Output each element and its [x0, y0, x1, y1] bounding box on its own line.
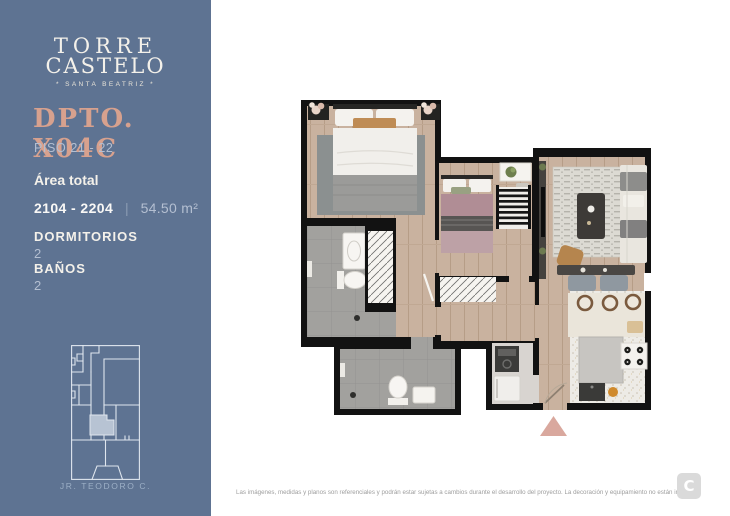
hall-closet — [440, 277, 496, 302]
tv-icon — [541, 187, 545, 237]
bathrooms-value: 2 — [34, 278, 41, 293]
cutting-board — [627, 321, 643, 333]
double-bed — [333, 104, 417, 211]
plant-icon — [506, 167, 517, 178]
street-label: JR. TEODORO C. — [0, 481, 211, 491]
floor-plan — [283, 95, 668, 442]
dining-chair — [568, 275, 596, 291]
map-unit-highlight — [90, 415, 114, 435]
facade-notch — [644, 273, 653, 291]
dining-chair — [600, 275, 628, 291]
bathrooms-label: BAÑOS — [34, 261, 86, 276]
divider-bar: | — [125, 200, 129, 216]
brand-name-line2: CASTELO — [0, 56, 211, 77]
plant-icon — [539, 248, 546, 255]
bedrooms-label: DORMITORIOS — [34, 229, 138, 244]
sink — [413, 387, 435, 403]
unit-numbers: 2104 - 2204 — [34, 200, 113, 216]
bedrooms-value: 2 — [34, 246, 41, 261]
kitchen-counter — [579, 337, 623, 383]
brand-logo: TORRE CASTELO * SANTA BEATRIZ * — [0, 36, 211, 88]
total-area-value: 54.50 m² — [141, 200, 199, 216]
floor-range-label: PISO 21 - 22 — [34, 141, 113, 155]
unit-title: DPTO. X04C — [33, 104, 211, 164]
toilet-icon — [337, 271, 366, 289]
bar-stools — [578, 295, 640, 310]
area-total-label: Área total — [34, 172, 99, 188]
coffee-table — [577, 193, 605, 239]
wardrobe-closet — [365, 223, 396, 312]
toilet-icon — [388, 376, 408, 405]
sink-cabinet — [343, 233, 365, 269]
dining-table — [557, 265, 635, 275]
towel — [340, 363, 345, 377]
flyer-page: TORRE CASTELO * SANTA BEATRIZ * DPTO. X0… — [0, 0, 730, 516]
shower-drain-icon — [350, 392, 356, 398]
unit-numbers-area-row: 2104 - 2204 | 54.50 m² — [34, 200, 198, 216]
shower-drain-icon — [354, 315, 360, 321]
stairs — [496, 185, 531, 229]
plant-icon — [539, 164, 546, 171]
building-footprint-map — [71, 345, 140, 480]
suite-corridor-floor — [396, 218, 435, 337]
sidebar-panel: TORRE CASTELO * SANTA BEATRIZ * DPTO. X0… — [0, 0, 211, 516]
developer-logo-letter: C — [683, 477, 694, 495]
stove — [621, 343, 647, 369]
pan-icon — [608, 387, 618, 397]
brand-name-line1: TORRE — [0, 36, 211, 56]
brand-tagline: * SANTA BEATRIZ * — [0, 81, 211, 88]
fridge-icon — [494, 376, 520, 401]
towel — [307, 261, 312, 277]
entrance-marker-icon — [540, 416, 567, 436]
sofa — [620, 165, 647, 263]
entry-corridor-floor — [539, 291, 570, 403]
legal-disclaimer: Las imágenes, medidas y planos son refer… — [236, 489, 676, 496]
map-lobby-notch — [92, 466, 123, 479]
developer-logo: C — [677, 473, 701, 499]
